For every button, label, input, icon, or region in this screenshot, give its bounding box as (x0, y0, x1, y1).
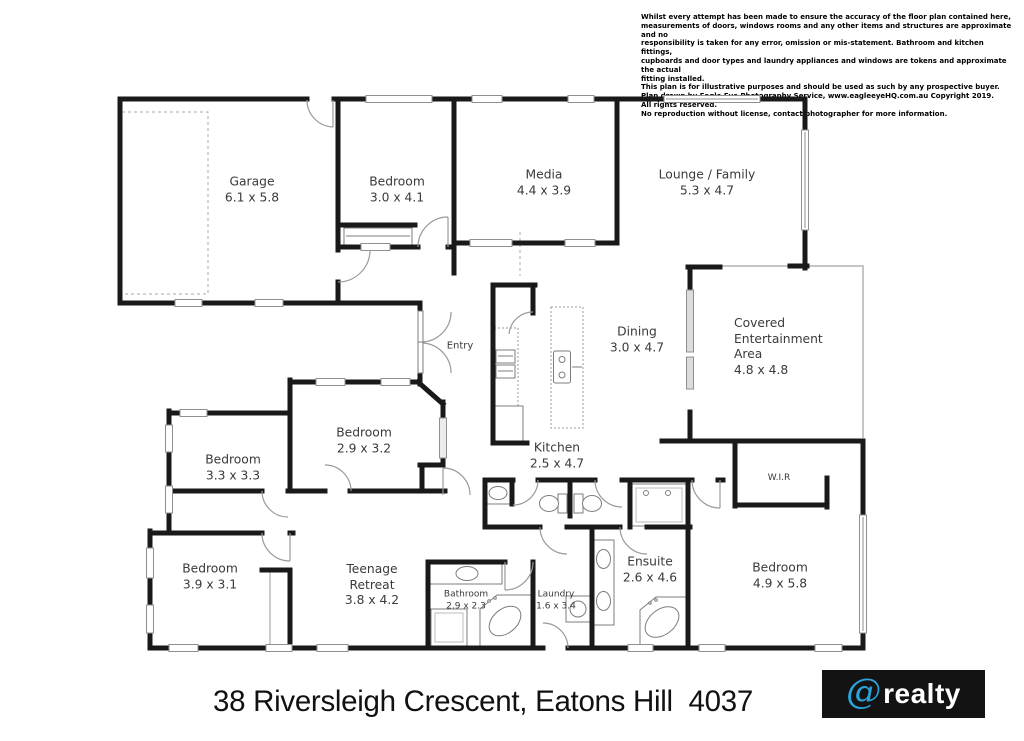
door-arc (421, 312, 451, 342)
window-icon (628, 645, 653, 652)
room-label-teenage-retreat: Teenage Retreat 3.8 x 4.2 (345, 562, 399, 609)
window-icon (565, 240, 595, 247)
room-label-bedroom-front: Bedroom 3.0 x 4.1 (369, 175, 425, 206)
toilet-icon (540, 496, 559, 512)
room-label-bedroom-left: Bedroom 3.3 x 3.3 (205, 453, 261, 484)
room-label-bathroom: Bathroom 2.9 x 2.3 (444, 590, 488, 613)
sink-icon (456, 567, 478, 581)
door-arc (307, 100, 333, 127)
sliding-door-icon (687, 290, 694, 352)
door-arc (325, 465, 351, 491)
window-icon (568, 96, 594, 103)
window-icon (169, 645, 198, 652)
window-icon (180, 410, 207, 417)
room-label-media: Media 4.4 x 3.9 (517, 168, 571, 199)
property-address: 38 Riversleigh Crescent, Eatons Hill 403… (213, 685, 753, 719)
logo-at-icon: @ (846, 675, 881, 710)
bath-tap (649, 602, 652, 605)
toilet-tank (558, 494, 567, 513)
window-icon (815, 645, 842, 652)
window-icon (472, 96, 502, 103)
window-icon (366, 96, 432, 103)
dashed-lines (122, 112, 520, 294)
room-label-kitchen: Kitchen 2.5 x 4.7 (530, 441, 584, 472)
window-icon (166, 425, 173, 452)
door-arc (540, 527, 567, 554)
fridge-cabinet (495, 406, 523, 442)
door-arc (338, 250, 370, 282)
door-arc (262, 533, 290, 561)
entry-label: Entry (447, 341, 474, 352)
room-label-dining: Dining 3.0 x 4.7 (610, 325, 664, 356)
garage-door-dashed-rect (122, 112, 208, 294)
bath-tap (655, 599, 658, 602)
door-arc (262, 491, 288, 517)
room-label-lounge-family: Lounge / Family 5.3 x 4.7 (659, 168, 756, 199)
shower-inner (636, 488, 682, 522)
window-icon (166, 486, 173, 513)
room-label-bedroom-master: Bedroom 4.9 x 5.8 (752, 561, 808, 592)
room-label-covered-entertainment: Covered Entertainment Area 4.8 x 4.8 (734, 316, 823, 378)
room-label-garage: Garage 6.1 x 5.8 (225, 175, 279, 206)
window-icon (266, 645, 292, 652)
window-icon (175, 300, 202, 307)
window-icon (440, 418, 447, 458)
logo-text: realty (883, 678, 961, 710)
shower-inner (435, 613, 463, 642)
floor-plan-drawing (0, 0, 1024, 741)
window-icon (147, 605, 154, 633)
window-icon (316, 379, 345, 386)
door-arc (543, 623, 568, 648)
realty-logo: @realty (822, 670, 985, 718)
door-arc (513, 480, 538, 505)
room-label-bedroom-mid: Bedroom 2.9 x 3.2 (336, 426, 392, 457)
door-arc (692, 480, 720, 508)
robe-slider (361, 244, 390, 251)
door-leaf (418, 311, 423, 342)
window-icon (317, 645, 348, 652)
room-label-bedroom-lower-left: Bedroom 3.9 x 3.1 (182, 562, 238, 593)
window-icon (699, 645, 725, 652)
wir-label: W.I.R (768, 473, 791, 483)
floorplan-page: Whilst every attempt has been made to en… (0, 0, 1024, 741)
entry-doors (418, 311, 423, 373)
door-leaf (418, 342, 423, 373)
basin-icon (489, 487, 507, 500)
window-icon (381, 379, 410, 386)
window-icon (255, 300, 283, 307)
sliding-door-icon (687, 357, 694, 389)
door-arc (418, 217, 448, 247)
door-arc (620, 527, 647, 554)
sink-icon (597, 550, 611, 569)
bath-tap (494, 597, 497, 600)
room-label-ensuite: Ensuite 2.6 x 4.6 (623, 555, 677, 586)
toilet-tank (574, 494, 583, 513)
toilet-icon (583, 496, 602, 512)
room-label-laundry: Laundry 1.6 x 3.4 (536, 590, 576, 613)
window-icon (470, 240, 512, 247)
window-icon (147, 548, 154, 578)
sink-icon (597, 592, 611, 611)
door-arc (505, 562, 533, 590)
